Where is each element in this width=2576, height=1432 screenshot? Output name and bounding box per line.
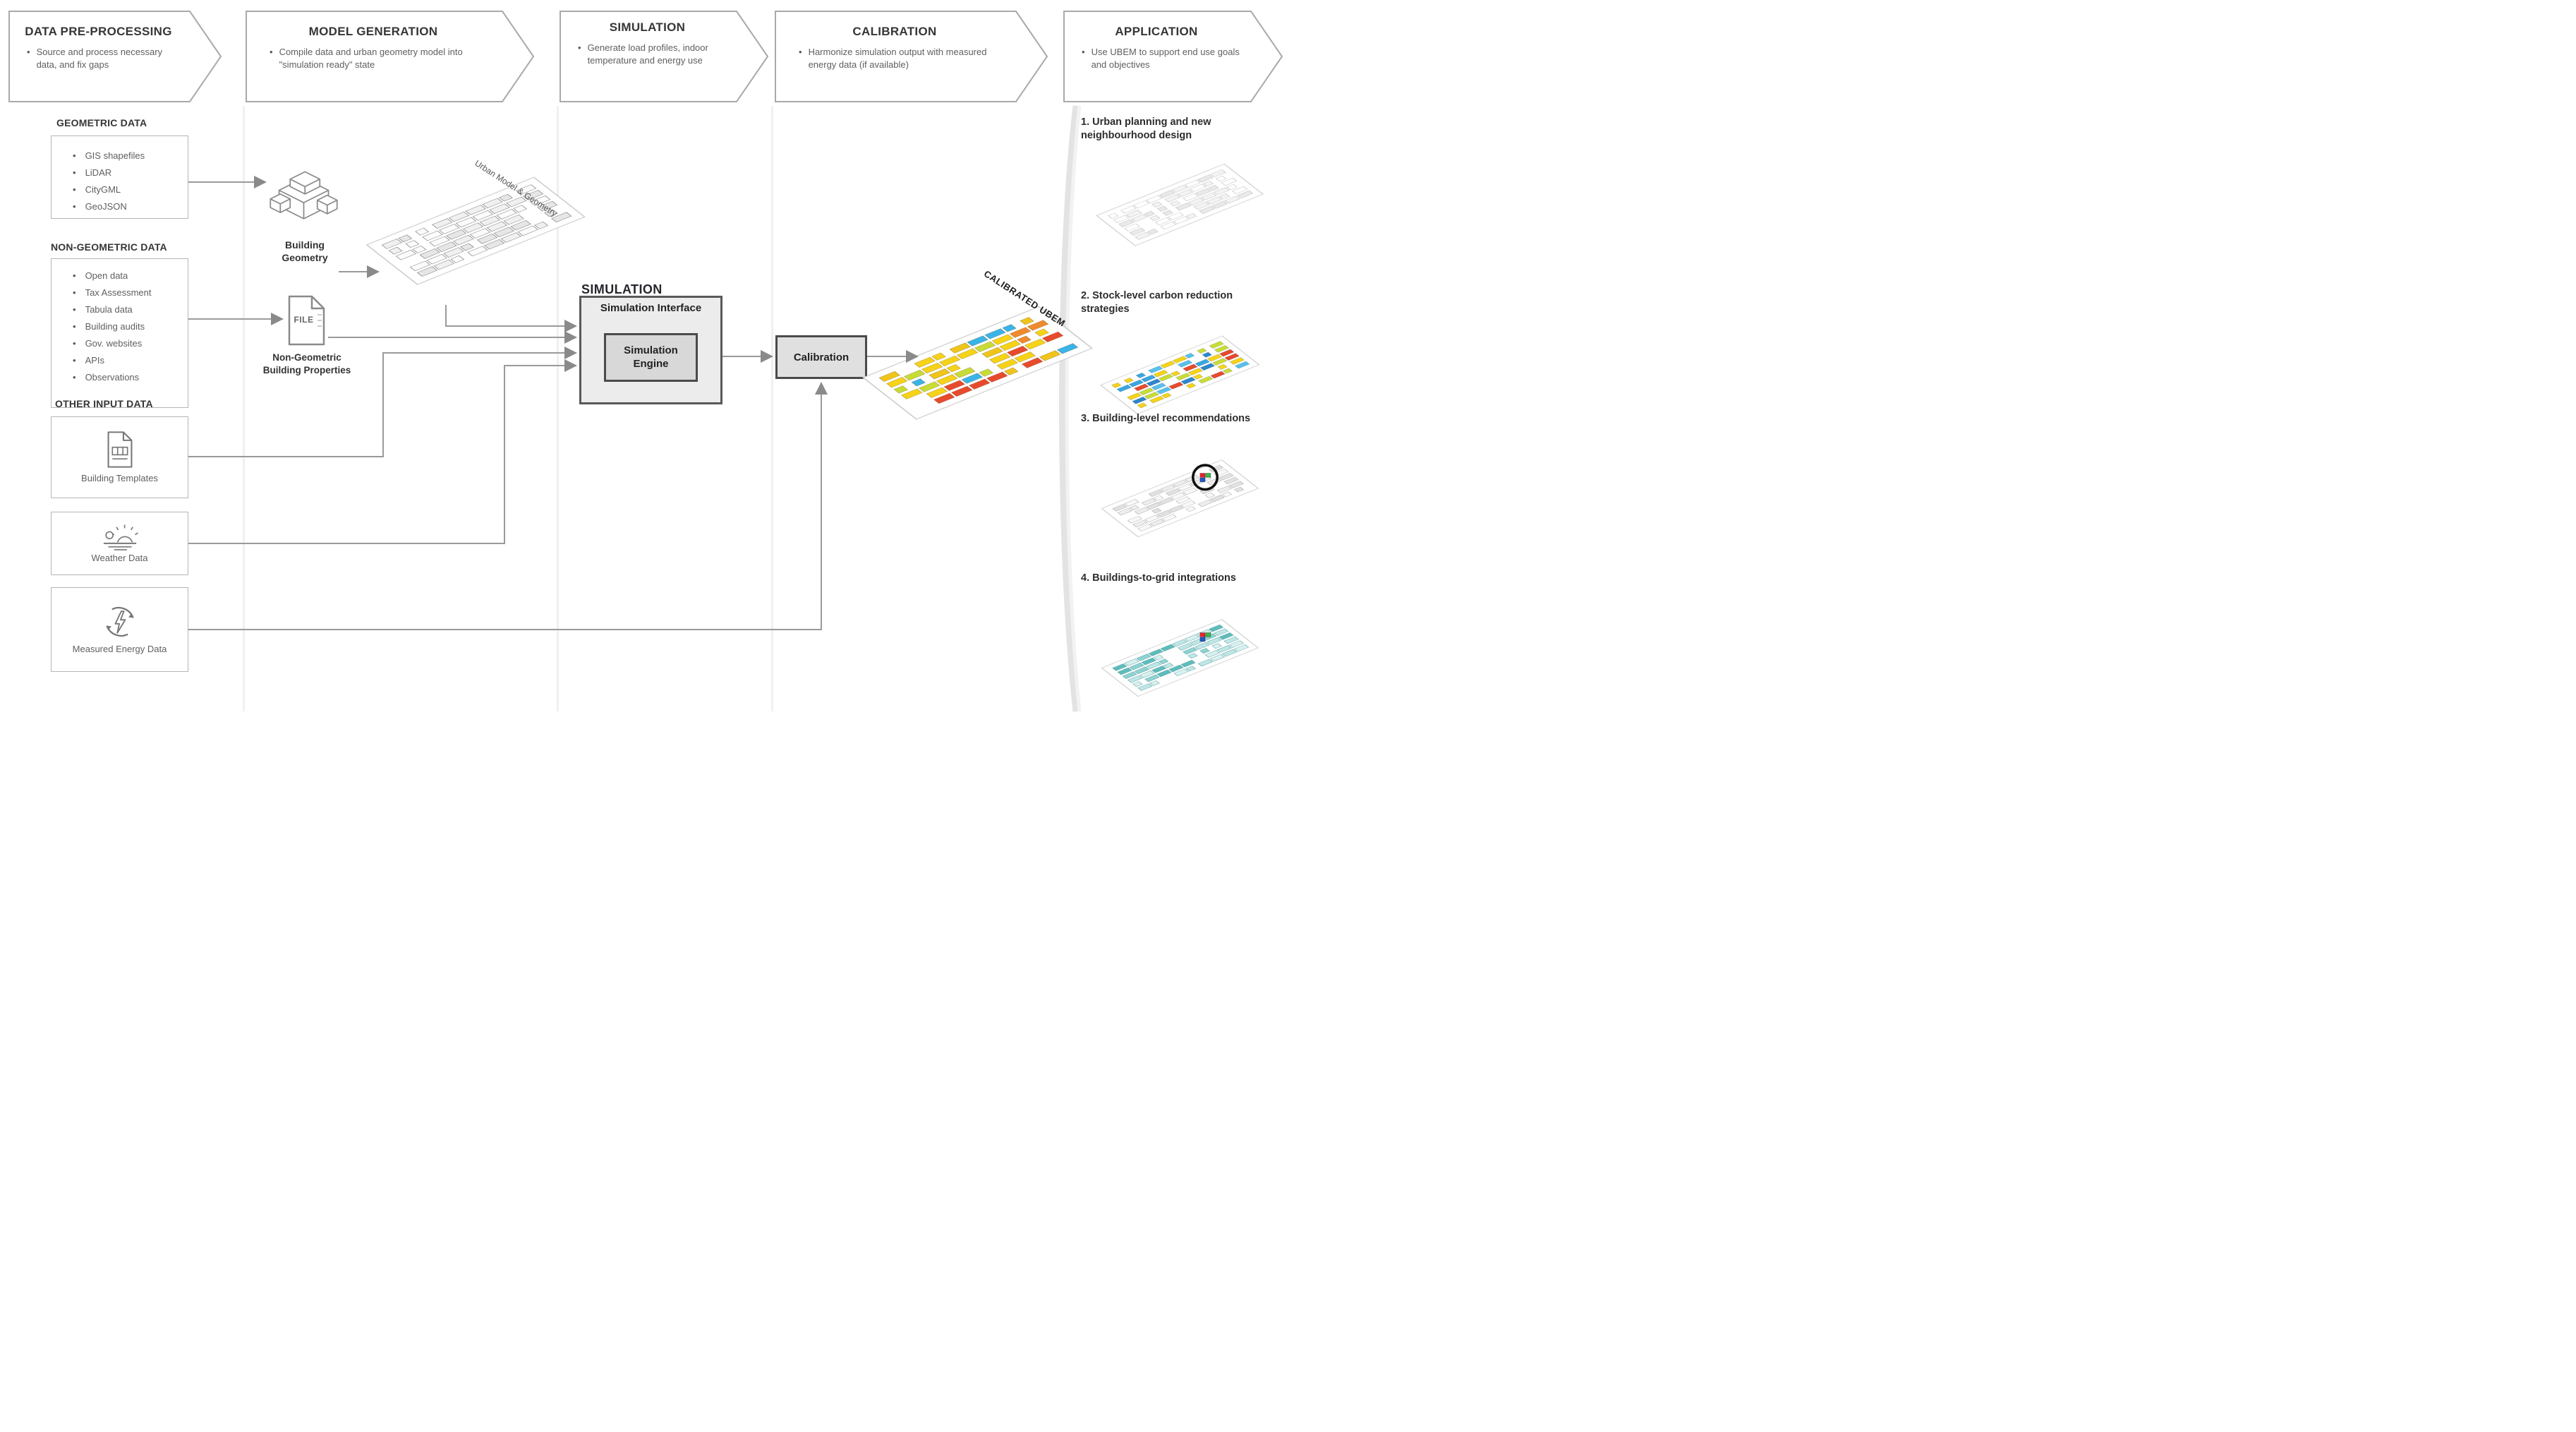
application-item-3-thumbnail <box>1083 442 1281 553</box>
building-level-map-sketch <box>1083 442 1281 553</box>
application-item-3-label: 3. Building-level recommendations <box>1081 412 1273 426</box>
document-template-icon <box>104 431 136 469</box>
building-templates-box: Building Templates <box>51 416 188 498</box>
stage-bullet-text: Harmonize simulation output with measure… <box>809 46 1008 71</box>
ubem-workflow-diagram: DATA PRE-PROCESSING Source and process n… <box>0 0 1288 716</box>
non-geometric-data-list: Open data Tax Assessment Tabula data Bui… <box>52 259 188 390</box>
other-input-data-heading: OTHER INPUT DATA <box>55 398 153 409</box>
building-geometry-label: Building Geometry <box>262 239 347 264</box>
buildings-to-grid-map-render <box>1083 601 1281 713</box>
weather-data-label: Weather Data <box>92 553 148 564</box>
list-item: Tax Assessment <box>73 284 183 301</box>
application-item-2-label: 2. Stock-level carbon reduction strategi… <box>1081 289 1273 316</box>
list-item: Open data <box>73 267 183 284</box>
simulation-engine-box: Simulation Engine <box>604 333 698 382</box>
file-icon: FILE <box>286 295 327 346</box>
urban-planning-map-sketch <box>1083 145 1281 263</box>
urban-model-map-sketch <box>373 147 584 313</box>
stage-title: APPLICATION <box>1063 25 1250 39</box>
application-item-4-label: 4. Buildings-to-grid integrations <box>1081 572 1273 585</box>
list-item: LiDAR <box>73 164 183 181</box>
list-item: Observations <box>73 369 183 386</box>
urban-model-geometry-map: Urban Model & Geometry <box>373 147 584 313</box>
energy-cycle-icon <box>102 603 138 640</box>
stage-title: CALIBRATION <box>775 25 1015 39</box>
application-item-1-label: 1. Urban planning and new neighbourhood … <box>1081 116 1273 143</box>
stage-chevron-simulation: SIMULATION Generate load profiles, indoo… <box>560 11 769 102</box>
arrow-templates-to-simulation <box>188 353 574 457</box>
building-geometry-icon <box>267 159 341 228</box>
weather-data-box: Weather Data <box>51 512 188 575</box>
geometric-data-box: GIS shapefiles LiDAR CityGML GeoJSON <box>51 136 188 219</box>
stage-bullet-text: Generate load profiles, indoor temperatu… <box>588 42 728 66</box>
non-geometric-data-box: Open data Tax Assessment Tabula data Bui… <box>51 258 188 408</box>
arrow-weather-to-simulation <box>188 366 574 543</box>
stage-bullet-text: Compile data and urban geometry model in… <box>279 46 494 71</box>
simulation-section-label: SIMULATION <box>581 282 663 297</box>
stage-chevron-model-generation: MODEL GENERATION Compile data and urban … <box>246 11 535 102</box>
geometric-data-list: GIS shapefiles LiDAR CityGML GeoJSON <box>52 136 188 219</box>
calibration-box: Calibration <box>775 335 867 379</box>
arrow-measured-energy-to-calibration <box>188 385 821 630</box>
non-geometric-properties-label: Non-Geometric Building Properties <box>258 351 356 376</box>
list-item: Building audits <box>73 318 183 335</box>
stage-divider-1 <box>243 106 245 711</box>
calibrated-ubem-map: CALIBRATED UBEM <box>869 254 1092 469</box>
stage-title: SIMULATION <box>560 20 735 35</box>
measured-energy-data-box: Measured Energy Data <box>51 587 188 672</box>
stage-divider-3 <box>771 106 773 711</box>
building-templates-label: Building Templates <box>81 473 158 484</box>
list-item: GIS shapefiles <box>73 148 183 164</box>
simulation-interface-label: Simulation Interface <box>581 302 720 314</box>
measured-energy-data-label: Measured Energy Data <box>73 644 167 655</box>
weather-sun-icon <box>97 522 143 550</box>
list-item: GeoJSON <box>73 198 183 215</box>
list-item: Tabula data <box>73 301 183 318</box>
list-item: APIs <box>73 352 183 369</box>
list-item: CityGML <box>73 181 183 198</box>
list-item: Gov. websites <box>73 335 183 352</box>
calibrated-ubem-map-render <box>869 254 1092 469</box>
application-item-1-thumbnail <box>1083 145 1281 263</box>
stage-bullet-text: Use UBEM to support end use goals and ob… <box>1092 46 1242 71</box>
file-icon-label: FILE <box>286 315 321 325</box>
stage-bullet-text: Source and process necessary data, and f… <box>37 46 181 71</box>
stage-title: DATA PRE-PROCESSING <box>8 25 188 39</box>
non-geometric-data-heading: NON-GEOMETRIC DATA <box>51 241 167 253</box>
stage-title: MODEL GENERATION <box>246 25 501 39</box>
geometric-data-heading: GEOMETRIC DATA <box>56 117 147 128</box>
stage-chevron-application: APPLICATION Use UBEM to support end use … <box>1063 11 1283 102</box>
application-item-4-thumbnail <box>1083 601 1281 713</box>
stage-chevron-data-pre-processing: DATA PRE-PROCESSING Source and process n… <box>8 11 222 102</box>
stage-chevron-calibration: CALIBRATION Harmonize simulation output … <box>775 11 1048 102</box>
